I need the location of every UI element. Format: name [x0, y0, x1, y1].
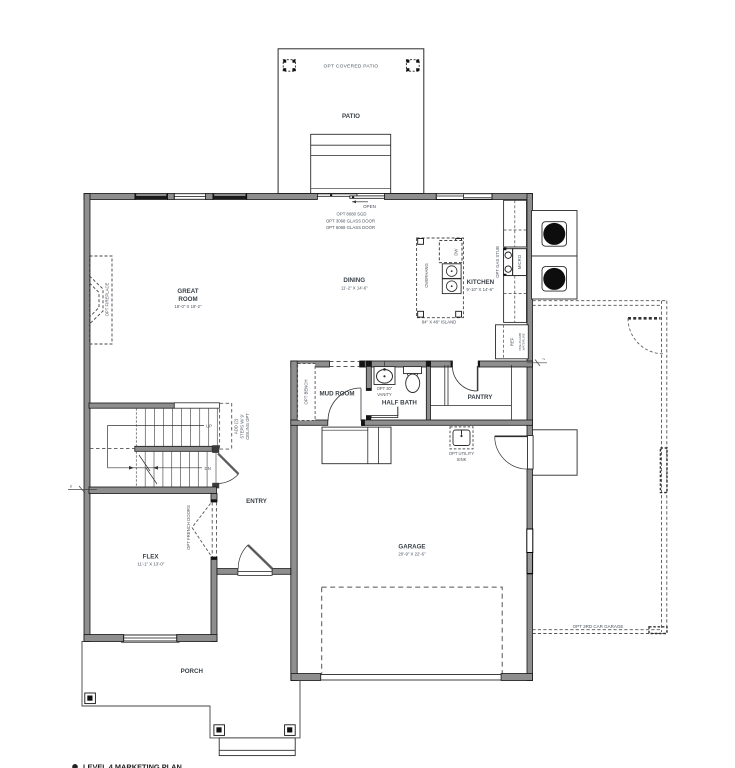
svg-text:UP: UP: [206, 424, 212, 429]
svg-text:8: 8: [70, 485, 72, 489]
svg-text:STEPS W/ 9': STEPS W/ 9': [239, 414, 244, 439]
svg-text:OPT 8080 SGD: OPT 8080 SGD: [336, 212, 366, 217]
svg-text:HALF BATH: HALF BATH: [382, 400, 417, 407]
svg-text:OPT GAS STUB: OPT GAS STUB: [495, 246, 500, 278]
svg-text:OPT 3068 GLASS DOOR: OPT 3068 GLASS DOOR: [326, 218, 375, 223]
svg-text:20'-9" X 22'-6": 20'-9" X 22'-6": [398, 551, 426, 556]
svg-text:84" X 48" ISLAND: 84" X 48" ISLAND: [422, 320, 457, 325]
svg-text:OPT 3RD CAR GARAGE: OPT 3RD CAR GARAGE: [573, 624, 624, 629]
svg-text:OPT FRENCH DOORS: OPT FRENCH DOORS: [186, 505, 191, 550]
svg-text:ENTRY: ENTRY: [246, 498, 268, 505]
svg-text:11'-2" X 14'-6": 11'-2" X 14'-6": [341, 285, 368, 290]
svg-text:DN: DN: [205, 466, 211, 471]
svg-text:FLEX: FLEX: [143, 554, 160, 561]
svg-text:VANITY: VANITY: [377, 392, 392, 397]
svg-text:DW: DW: [454, 248, 459, 256]
svg-text:REF: REF: [510, 337, 515, 346]
svg-text:GREAT: GREAT: [177, 288, 198, 295]
svg-text:PORCH: PORCH: [181, 668, 204, 675]
svg-text:OPEN: OPEN: [363, 204, 376, 209]
svg-text:OVERHANG: OVERHANG: [424, 263, 429, 288]
svg-text:SINK: SINK: [457, 457, 467, 462]
svg-text:18'-0" X 18'-2": 18'-0" X 18'-2": [174, 304, 202, 309]
svg-text:ADD (2): ADD (2): [234, 418, 239, 434]
svg-text:OPT UTILITY: OPT UTILITY: [449, 451, 474, 456]
svg-text:GARAGE: GARAGE: [398, 544, 425, 551]
svg-text:ROOM: ROOM: [178, 296, 197, 303]
svg-text:CEILING OPT: CEILING OPT: [245, 413, 250, 440]
svg-text:OPT BENCH: OPT BENCH: [304, 380, 309, 405]
svg-text:PANTRY: PANTRY: [468, 394, 494, 401]
svg-text:OPT COVERED PATIO: OPT COVERED PATIO: [324, 64, 379, 70]
svg-text:OPT 6068 GLASS DOOR: OPT 6068 GLASS DOOR: [326, 225, 375, 230]
svg-text:MICRO: MICRO: [517, 254, 522, 269]
svg-text:MUD ROOM: MUD ROOM: [319, 391, 354, 398]
svg-text:DINING: DINING: [343, 277, 365, 284]
svg-text:11'-1" X 13'-0": 11'-1" X 13'-0": [137, 561, 164, 566]
svg-text:KITCHEN: KITCHEN: [467, 279, 495, 286]
svg-text:2: 2: [542, 358, 546, 360]
svg-text:PATIO: PATIO: [342, 113, 360, 120]
svg-text:OPT FIREPLACE: OPT FIREPLACE: [105, 282, 110, 316]
svg-text:9'-10" X 14'-6": 9'-10" X 14'-6": [466, 287, 494, 292]
svg-text:OPT 30": OPT 30": [377, 386, 393, 391]
svg-text:LEVEL 4 MARKETING PLAN: LEVEL 4 MARKETING PLAN: [83, 763, 182, 768]
svg-text:WATERLINE: WATERLINE: [521, 333, 525, 350]
